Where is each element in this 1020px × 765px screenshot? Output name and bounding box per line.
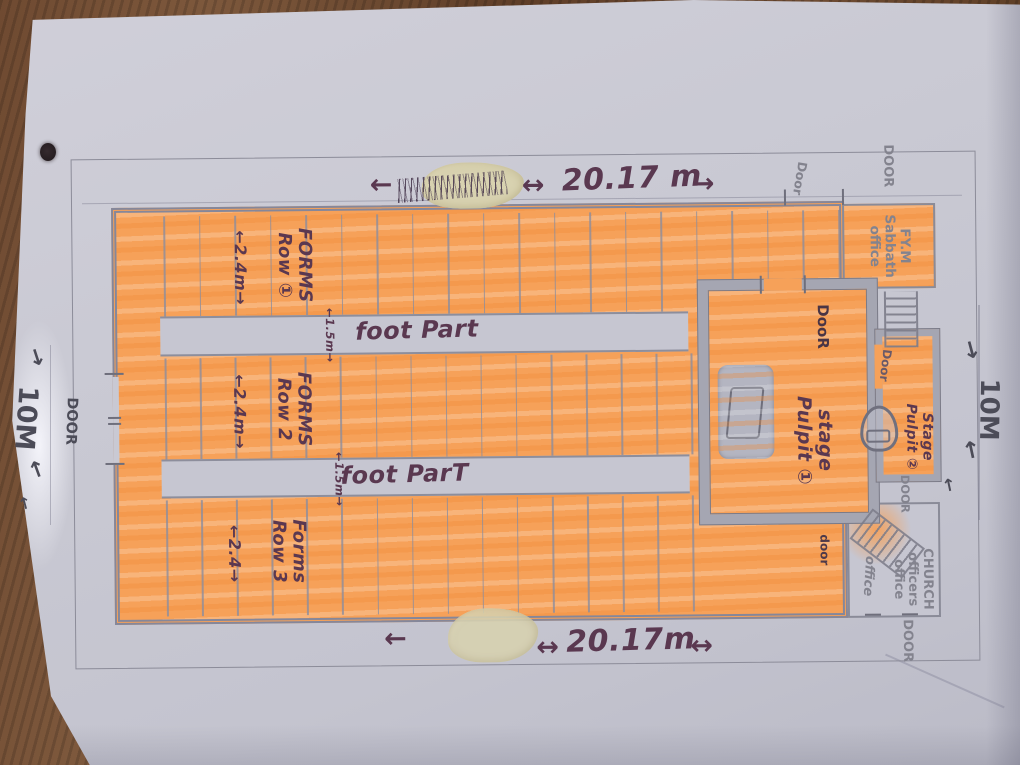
bench-line bbox=[164, 358, 166, 459]
photo-scene: ← ↔ 20.17 m → foot Part foot ParT ←1.5m→… bbox=[0, 0, 1020, 765]
bench-line bbox=[586, 354, 588, 455]
bench-line bbox=[621, 354, 623, 455]
footpath-2-width-label: ←1.5m→ bbox=[326, 455, 350, 503]
bench-line bbox=[411, 498, 414, 614]
bench-line bbox=[166, 500, 169, 616]
stage-2-door-label: Door bbox=[872, 342, 896, 388]
bottom-mid-arrow-icon: ↔ bbox=[536, 632, 559, 663]
door-tick bbox=[804, 275, 806, 293]
bench-line bbox=[376, 214, 378, 314]
left-dimension-line bbox=[50, 345, 51, 525]
forms-row-2-label: FORMSRow 2 bbox=[266, 361, 321, 458]
left-dimension-value: 10M bbox=[6, 376, 44, 460]
bench-line bbox=[517, 497, 520, 613]
top-left-arrow-icon: ← bbox=[370, 169, 393, 200]
bench-line bbox=[625, 212, 627, 312]
bench-line bbox=[589, 212, 591, 312]
door-tick bbox=[108, 417, 121, 419]
bottom-dimension-value: 20.17m bbox=[566, 621, 696, 659]
bench-line bbox=[200, 358, 202, 459]
bench-line bbox=[552, 497, 555, 613]
bench-line bbox=[163, 216, 165, 316]
bench-line bbox=[445, 356, 447, 457]
top-dimension-value: 20.17 m bbox=[561, 158, 702, 198]
bench-line bbox=[341, 215, 343, 315]
top-mid-arrow-icon: ↔ bbox=[522, 170, 545, 201]
bench-line bbox=[376, 498, 379, 614]
sabbath-office-label: FY.MSabbathoffice bbox=[844, 205, 934, 287]
stage-1-door-label: DooR bbox=[809, 295, 836, 357]
forms-row-3-width: ←2.4→ bbox=[221, 506, 248, 602]
forms-row-1-label: FORMSRow ① bbox=[266, 217, 321, 314]
stage-bottom-door-label: door bbox=[811, 525, 835, 575]
bench-line bbox=[656, 354, 658, 455]
stairs-ladder bbox=[884, 291, 919, 347]
bench-line bbox=[412, 214, 414, 314]
bench-line bbox=[480, 355, 482, 456]
bench-line bbox=[340, 357, 342, 458]
stage-2-lower-door-label: DOOR bbox=[893, 470, 917, 516]
bench-line bbox=[622, 496, 625, 612]
bench-line bbox=[375, 356, 377, 457]
punch-hole-mark bbox=[40, 143, 56, 161]
bench-line bbox=[551, 355, 553, 456]
forms-row-1-width: ←2.4m→ bbox=[226, 220, 253, 316]
door-tick bbox=[760, 276, 762, 294]
top-right-arrow-icon: → bbox=[692, 168, 715, 199]
bench-line bbox=[515, 355, 517, 456]
left-door-opening bbox=[113, 377, 120, 465]
bench-line bbox=[554, 213, 556, 313]
stage-1-door-opening bbox=[764, 278, 802, 290]
bench-line bbox=[518, 213, 520, 313]
bench-line bbox=[447, 498, 450, 614]
bench-line bbox=[199, 216, 201, 316]
stage-1-label: stagePulpit ① bbox=[786, 379, 843, 502]
door-tick bbox=[842, 189, 844, 205]
bottom-right-arrow-icon: ↔ bbox=[690, 630, 713, 661]
door-tick bbox=[105, 373, 124, 375]
podium bbox=[718, 365, 775, 460]
bottom-left-arrow-icon: ← bbox=[384, 623, 407, 654]
bench-line bbox=[691, 353, 693, 454]
bench-line bbox=[482, 497, 485, 613]
forms-row-2-width: ←2.4m→ bbox=[226, 364, 253, 460]
bench-line bbox=[587, 496, 590, 612]
bottom-right-door-label: DOOR bbox=[893, 604, 920, 676]
bench-line bbox=[483, 213, 485, 313]
bench-line bbox=[447, 214, 449, 314]
stage-pulpit-1: DooR stagePulpit ① bbox=[697, 278, 880, 526]
office-note-label: office bbox=[851, 545, 884, 607]
left-door-label: DOOR bbox=[56, 382, 86, 460]
footpath-1-width-label: ←1.5m→ bbox=[317, 311, 341, 359]
top-door-label: Door bbox=[786, 151, 815, 205]
bench-line bbox=[201, 500, 204, 616]
floor-plan: ← ↔ 20.17 m → foot Part foot ParT ←1.5m→… bbox=[71, 151, 981, 670]
forms-row-3-label: FormsRow 3 bbox=[261, 503, 316, 600]
podium-inner-line bbox=[726, 387, 765, 439]
paper-bottom-shadow bbox=[0, 725, 1020, 765]
bench-line bbox=[692, 495, 695, 611]
bench-line bbox=[410, 356, 412, 457]
door-tick bbox=[105, 463, 124, 465]
footpath-2-label: foot ParT bbox=[340, 458, 469, 489]
bench-line bbox=[341, 499, 344, 615]
tape-patch-bottom bbox=[448, 608, 539, 663]
door-tick bbox=[865, 614, 881, 616]
footpath-1-label: foot Part bbox=[355, 314, 479, 345]
bench-line bbox=[657, 496, 660, 612]
top-right-door-label: DOOR bbox=[874, 128, 899, 202]
door-tick bbox=[108, 423, 121, 425]
bench-line bbox=[660, 212, 662, 312]
